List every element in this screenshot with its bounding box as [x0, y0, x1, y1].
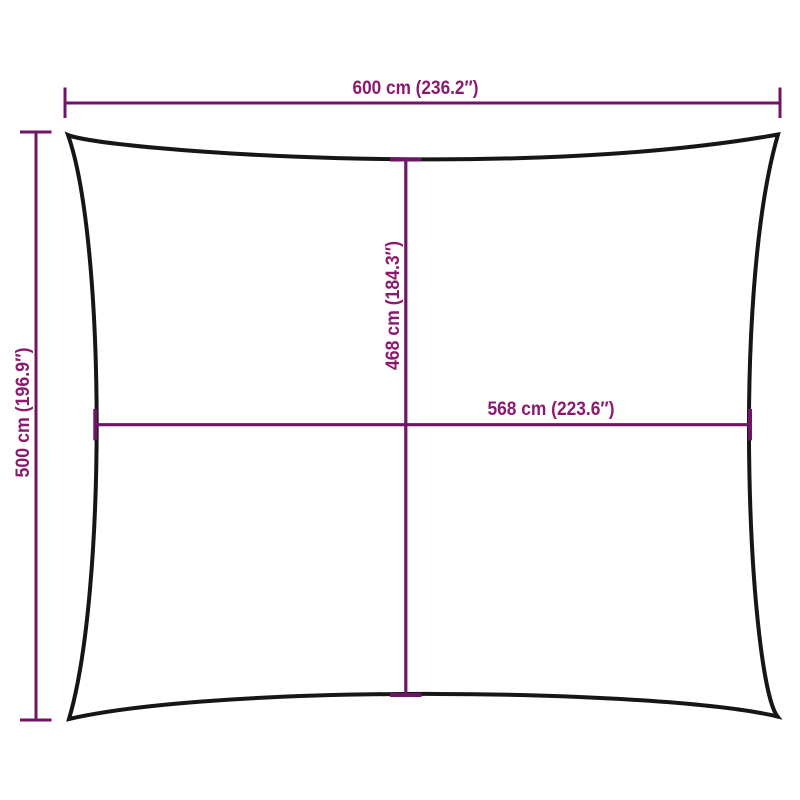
svg-text:600 cm (236.2″): 600 cm (236.2″)	[353, 77, 479, 99]
svg-text:468 cm (184.3″): 468 cm (184.3″)	[382, 241, 404, 370]
svg-text:568 cm (223.6″): 568 cm (223.6″)	[488, 398, 615, 420]
svg-text:500 cm (196.9″): 500 cm (196.9″)	[12, 348, 34, 478]
